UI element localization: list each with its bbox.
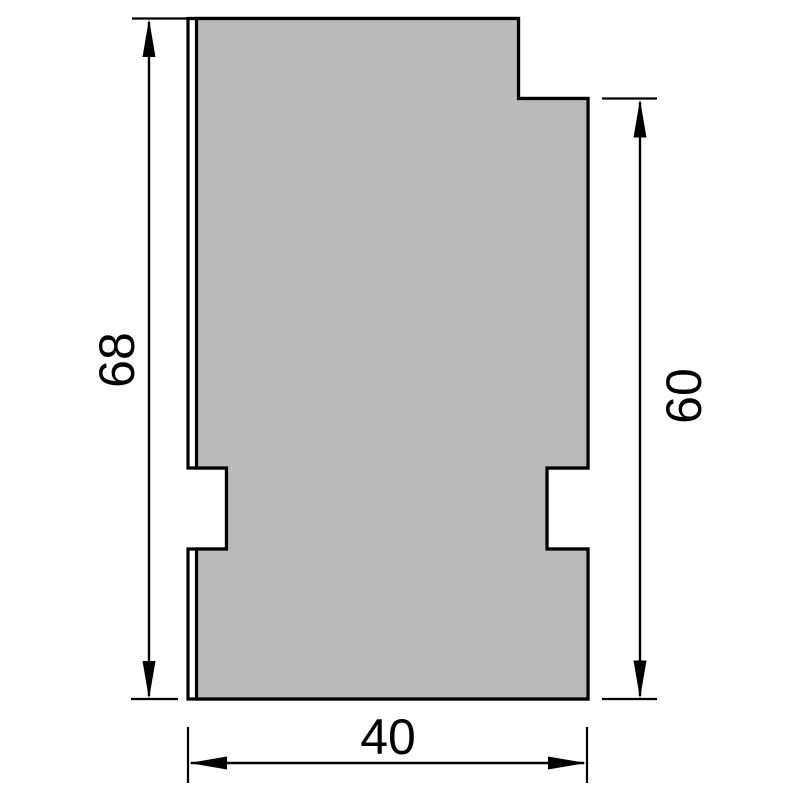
dimension-value-bottom-width: 40 xyxy=(360,709,416,765)
drawing-canvas: 68 60 40 xyxy=(0,0,800,800)
arrow-left-icon xyxy=(189,757,227,770)
cad-drawing: 68 60 40 xyxy=(0,0,800,800)
arrow-right-icon xyxy=(548,757,586,770)
arrow-up-icon xyxy=(143,19,156,57)
arrow-up-icon xyxy=(634,100,647,138)
dimension-left-height: 68 xyxy=(89,19,190,700)
dimension-bottom-width: 40 xyxy=(188,709,587,783)
dimension-right-height: 60 xyxy=(602,99,712,700)
dimension-value-right-height: 60 xyxy=(656,368,712,424)
profile-body xyxy=(197,19,589,700)
arrow-down-icon xyxy=(143,661,156,699)
dimension-value-left-height: 68 xyxy=(89,332,145,388)
arrow-down-icon xyxy=(634,661,647,699)
